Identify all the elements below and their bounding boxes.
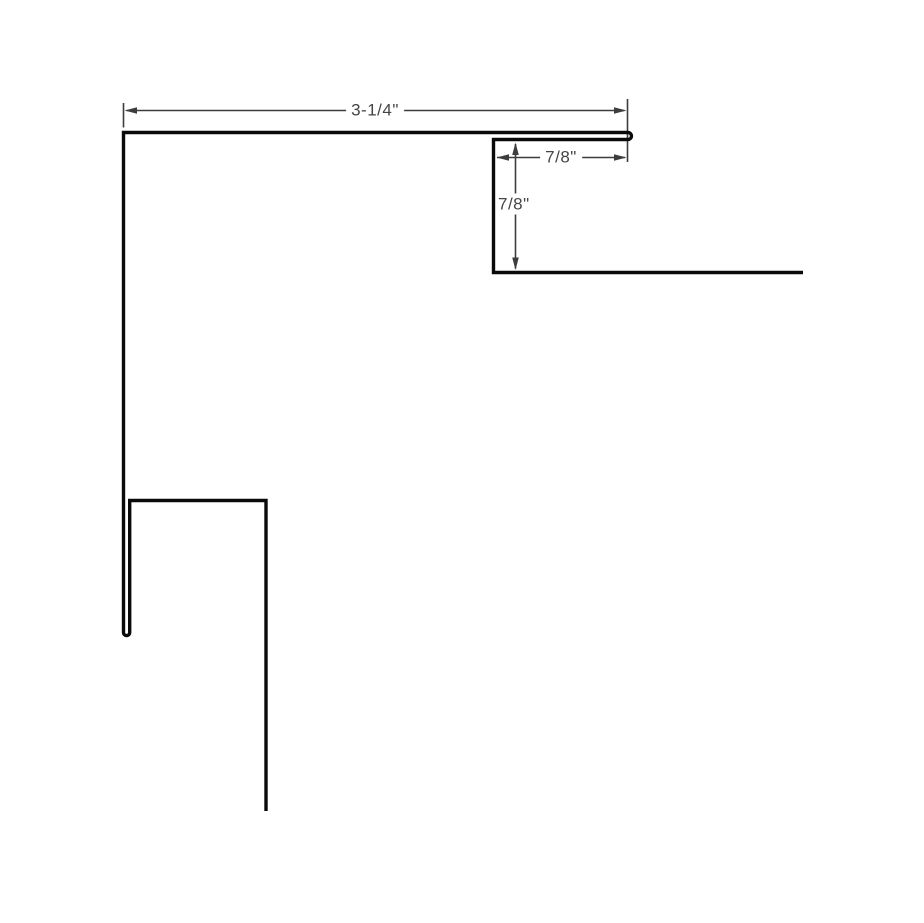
arrowhead-hem-width-left <box>497 154 510 161</box>
dimension-label-top-width: 3-1/4" <box>346 100 404 121</box>
arrowhead-hem-height-top <box>512 143 519 156</box>
arrowhead-hem-width-right <box>614 154 627 161</box>
arrowhead-top-width-right <box>614 107 627 114</box>
dimension-label-hem-height: 7/8" <box>496 194 532 215</box>
arrowhead-hem-height-bottom <box>512 258 519 271</box>
arrowhead-top-width-left <box>125 107 138 114</box>
profile-drawing-svg <box>0 0 924 923</box>
trim-profile-diagram: 3-1/4" 7/8" 7/8" <box>0 0 924 923</box>
profile-outline <box>124 133 804 812</box>
dimension-label-hem-width: 7/8" <box>540 147 582 168</box>
dimension-graphics <box>124 99 628 270</box>
